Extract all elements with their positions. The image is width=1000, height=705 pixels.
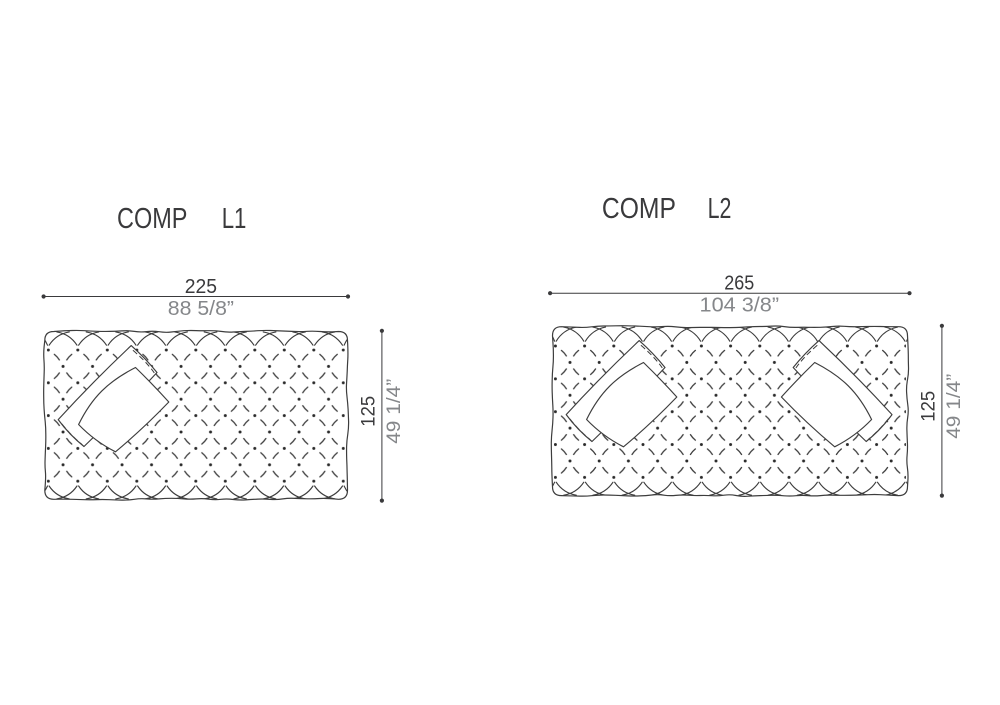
- svg-text:225: 225: [185, 276, 217, 298]
- svg-text:L1: L1: [222, 203, 247, 235]
- svg-text:COMP: COMP: [117, 203, 187, 235]
- svg-text:125: 125: [358, 396, 379, 427]
- svg-text:265: 265: [724, 273, 754, 295]
- svg-text:COMP: COMP: [602, 193, 676, 225]
- svg-text:L2: L2: [708, 193, 732, 225]
- svg-text:49 1/4”: 49 1/4”: [944, 374, 965, 439]
- svg-text:104 3/8”: 104 3/8”: [700, 295, 780, 317]
- svg-text:88 5/8”: 88 5/8”: [168, 298, 234, 320]
- svg-text:49 1/4”: 49 1/4”: [384, 379, 405, 444]
- svg-text:125: 125: [918, 391, 939, 422]
